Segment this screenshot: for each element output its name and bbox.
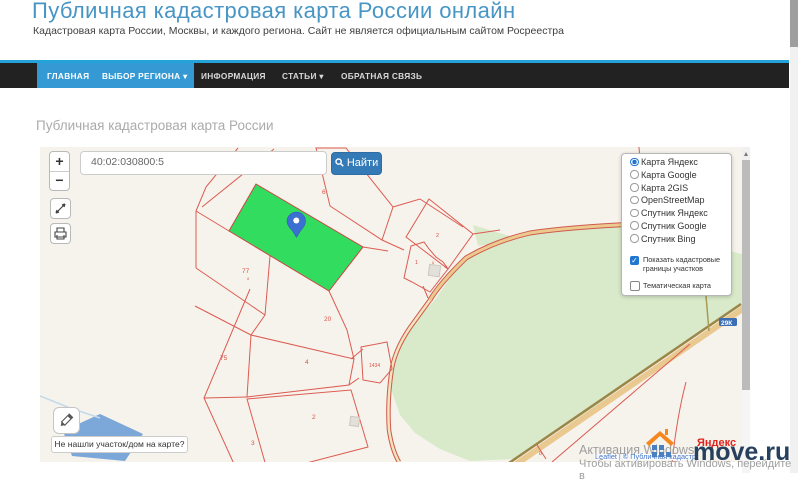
svg-text:77: 77 xyxy=(242,268,250,275)
svg-text:20: 20 xyxy=(324,316,332,323)
svg-text:2: 2 xyxy=(436,233,439,239)
svg-text:8: 8 xyxy=(539,451,542,457)
svg-text:29К: 29К xyxy=(721,320,732,327)
svg-text:4: 4 xyxy=(305,359,309,366)
svg-text:1: 1 xyxy=(415,260,418,266)
svg-text:75: 75 xyxy=(220,355,228,362)
svg-text:move.ru: move.ru xyxy=(693,438,790,465)
svg-text:6: 6 xyxy=(322,189,326,196)
svg-text:2: 2 xyxy=(312,414,316,421)
svg-text:1434: 1434 xyxy=(369,363,380,369)
svg-text:3: 3 xyxy=(251,440,255,447)
